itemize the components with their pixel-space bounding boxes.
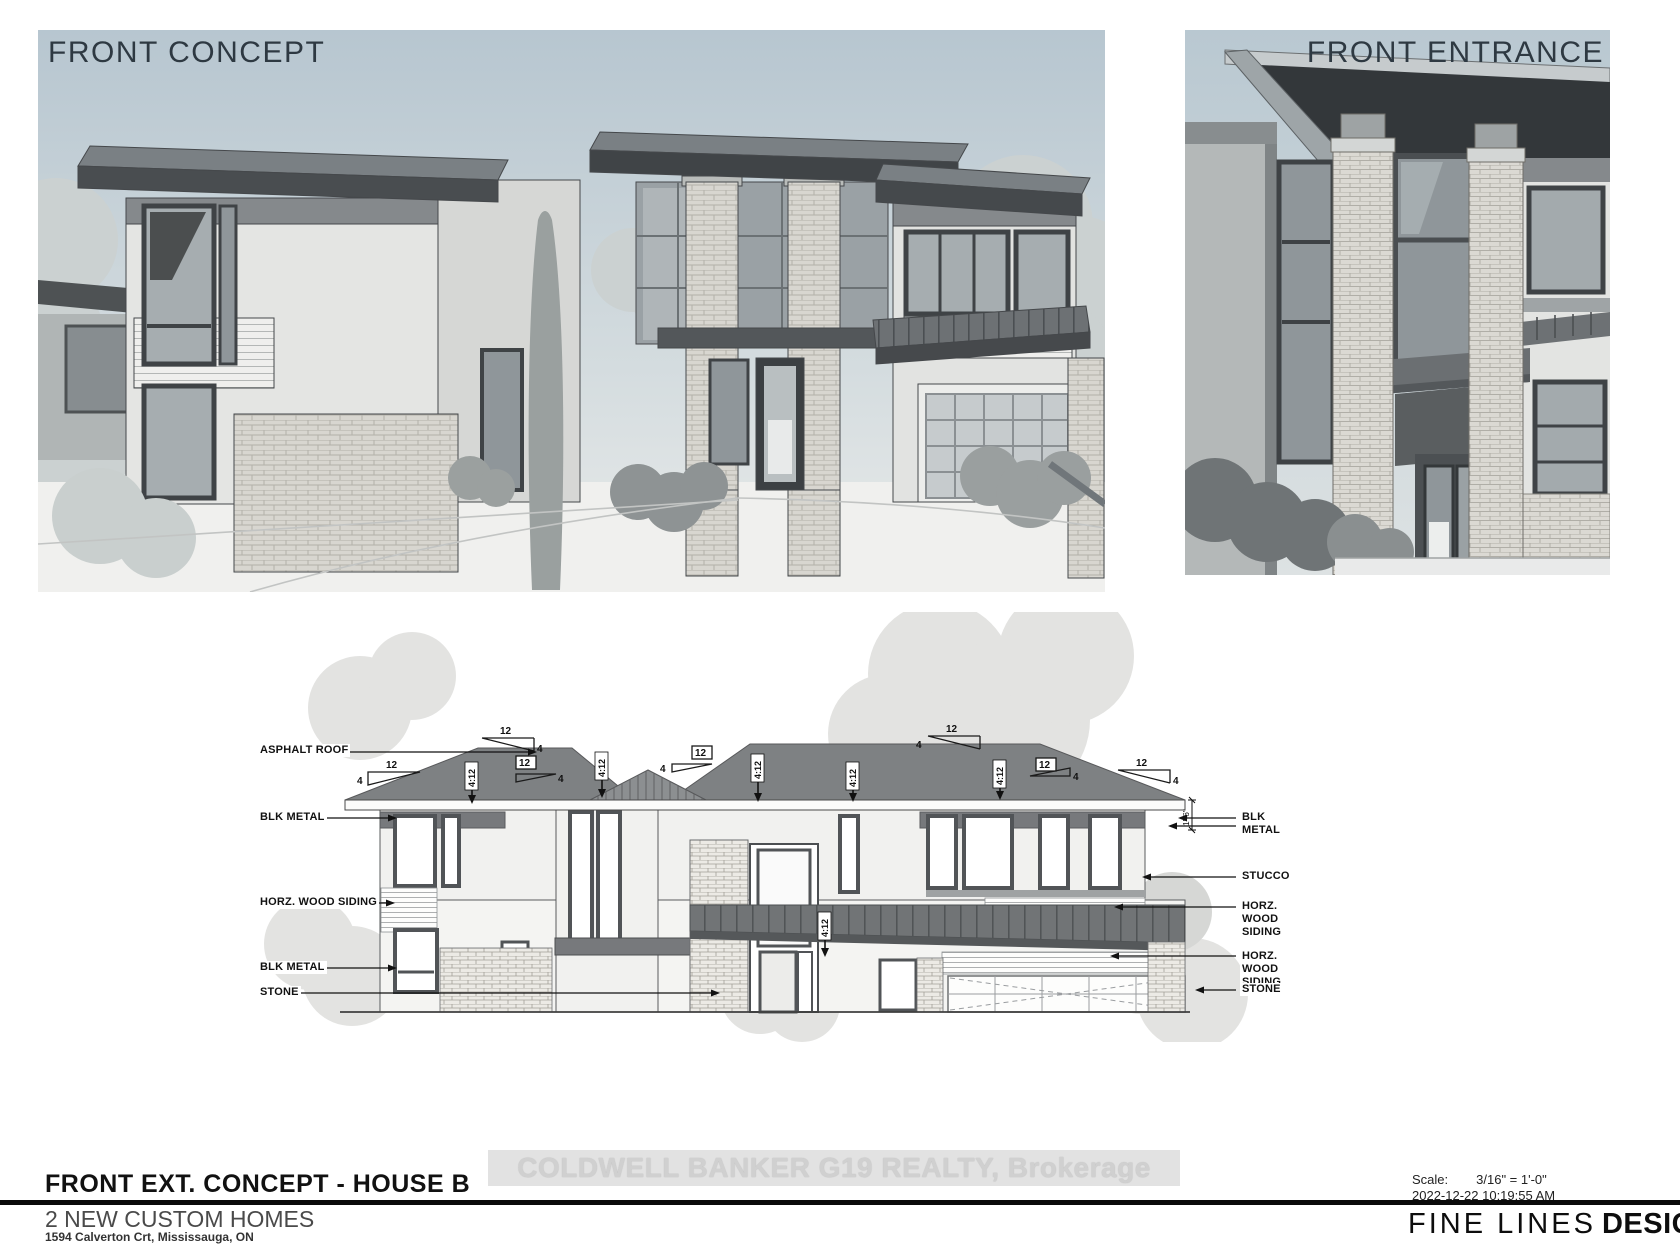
label-horz-wood-right-1: HORZ. WOOD SIDING: [1240, 900, 1290, 939]
svg-text:4: 4: [537, 744, 543, 755]
label-asphalt-roof: ASPHALT ROOF: [258, 744, 350, 757]
svg-text:4:12: 4:12: [467, 769, 477, 787]
firm-name-light: FINE LINES: [1408, 1208, 1596, 1240]
front-entrance-panel: FRONT ENTRANCE: [1185, 30, 1610, 575]
firm-logo: FINE LINESDESIGN: [1408, 1208, 1680, 1241]
svg-text:12: 12: [1136, 758, 1148, 769]
firm-name-bold: DESIGN: [1602, 1208, 1680, 1240]
svg-text:4: 4: [357, 776, 363, 787]
drawing-sheet: FRONT CONCEPT: [0, 0, 1680, 1255]
svg-text:4:12: 4:12: [820, 919, 830, 937]
svg-text:4:12: 4:12: [597, 759, 607, 777]
brokerage-watermark: COLDWELL BANKER G19 REALTY, Brokerage: [488, 1150, 1180, 1186]
label-stone-left: STONE: [258, 986, 301, 999]
svg-text:12: 12: [519, 758, 531, 769]
svg-text:1'-6": 1'-6": [1181, 809, 1191, 826]
plot-datetime: 2022-12-22 10:19:55 AM: [1412, 1188, 1555, 1203]
svg-text:4: 4: [660, 764, 666, 775]
svg-text:12: 12: [386, 760, 398, 771]
svg-text:4: 4: [916, 740, 922, 751]
label-blk-metal-left-1: BLK METAL: [258, 811, 327, 824]
svg-text:12: 12: [500, 726, 512, 737]
svg-text:4: 4: [1173, 776, 1179, 787]
sill-band: [926, 890, 1146, 897]
svg-text:12: 12: [695, 748, 707, 759]
label-stone-right: STONE: [1240, 983, 1283, 996]
project-name: 2 NEW CUSTOM HOMES: [45, 1206, 314, 1233]
project-address: 1594 Calverton Crt, Mississauga, ON: [45, 1230, 254, 1244]
svg-text:4:12: 4:12: [995, 767, 1005, 785]
entrance-ground: [1335, 558, 1610, 575]
siding-left-upper: [381, 888, 437, 932]
scale-row: Scale:3/16" = 1'-0": [1412, 1172, 1547, 1187]
front-concept-title: FRONT CONCEPT: [48, 36, 325, 70]
left-tall-window: [1279, 162, 1333, 462]
svg-text:4: 4: [558, 774, 564, 785]
front-concept-panel: FRONT CONCEPT: [38, 30, 1105, 592]
front-entrance-title: FRONT ENTRANCE: [1307, 36, 1604, 70]
scale-value: 3/16" = 1'-0": [1476, 1172, 1547, 1187]
label-blk-metal-left-2: BLK METAL: [258, 961, 327, 974]
right-wall: [1517, 158, 1610, 575]
brokerage-watermark-text: COLDWELL BANKER G19 REALTY, Brokerage: [517, 1152, 1151, 1184]
label-horz-wood-left: HORZ. WOOD SIDING: [258, 896, 379, 909]
front-concept-rendering: [38, 30, 1105, 592]
svg-text:4:12: 4:12: [753, 761, 763, 779]
svg-text:12: 12: [946, 724, 958, 735]
front-elevation-drawing: 124 124 124 124 124 124 124 4:12 4:12 4:…: [240, 612, 1290, 1042]
label-stucco: STUCCO: [1240, 870, 1292, 883]
scale-label: Scale:: [1412, 1172, 1448, 1187]
svg-text:4: 4: [1073, 772, 1079, 783]
label-blk-metal-right: BLK METAL: [1240, 811, 1290, 837]
front-entrance-rendering: [1185, 30, 1610, 575]
svg-text:12: 12: [1039, 760, 1051, 771]
svg-text:4:12: 4:12: [848, 769, 858, 787]
upper-entry-window: [1395, 156, 1473, 362]
drawing-title: FRONT EXT. CONCEPT - HOUSE B: [45, 1170, 470, 1199]
